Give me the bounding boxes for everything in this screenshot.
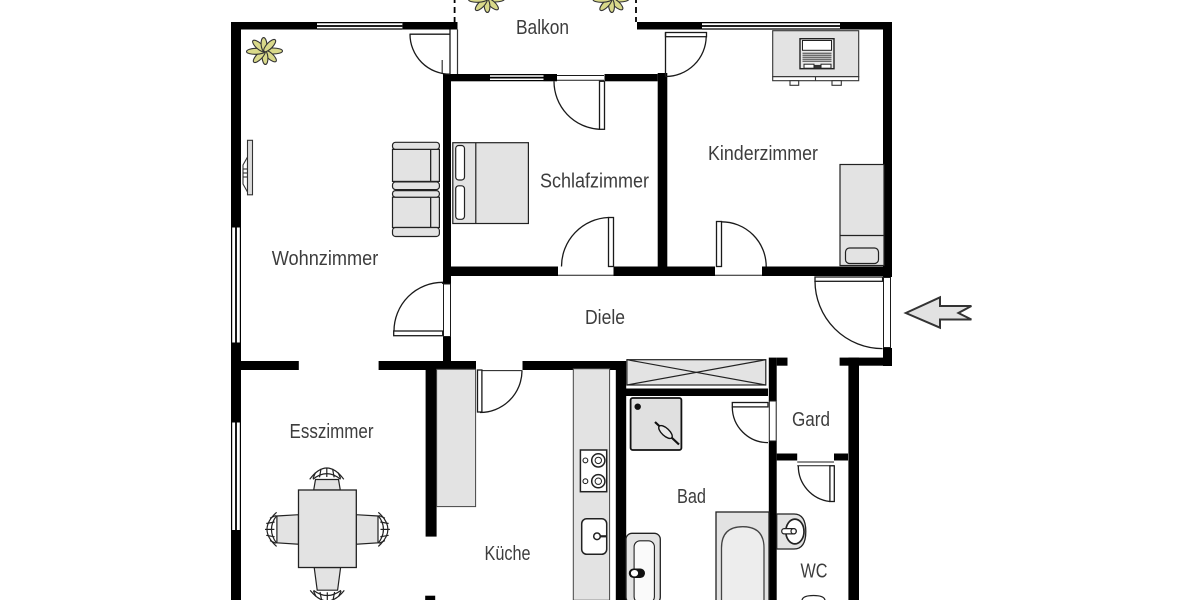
svg-text:Bad: Bad: [677, 486, 706, 508]
svg-text:Schlafzimmer: Schlafzimmer: [540, 170, 649, 192]
svg-text:WC: WC: [801, 560, 828, 582]
svg-text:Balkon: Balkon: [516, 17, 569, 39]
svg-text:Diele: Diele: [585, 307, 625, 329]
svg-text:Kinderzimmer: Kinderzimmer: [708, 143, 818, 165]
svg-text:Gard: Gard: [792, 409, 830, 431]
svg-text:Küche: Küche: [485, 543, 531, 565]
svg-text:Esszimmer: Esszimmer: [290, 421, 374, 443]
svg-text:Wohnzimmer: Wohnzimmer: [272, 248, 379, 270]
